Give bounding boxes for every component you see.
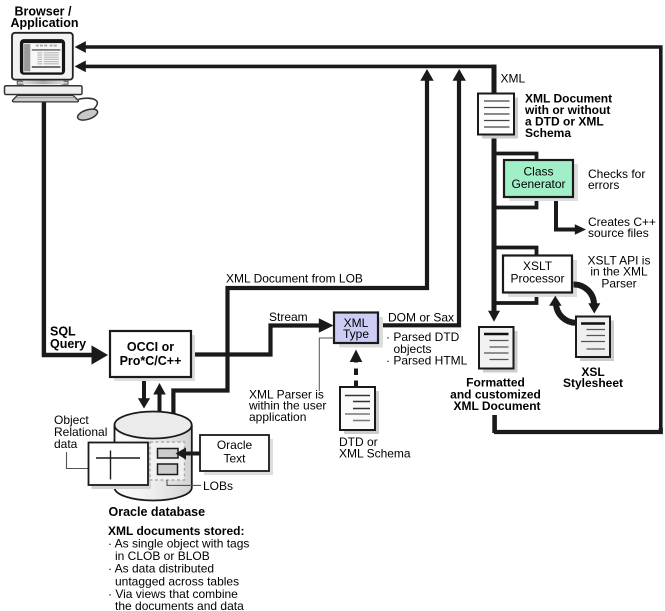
svg-text:DOM or Sax: DOM or Sax xyxy=(388,311,454,325)
svg-text:Parser: Parser xyxy=(601,276,636,290)
svg-text:Stylesheet: Stylesheet xyxy=(563,376,623,390)
svg-text:XML: XML xyxy=(501,72,526,86)
svg-text:XML Schema: XML Schema xyxy=(339,446,411,460)
svg-text:OCCI or: OCCI or xyxy=(127,340,174,354)
svg-text:Query: Query xyxy=(50,337,86,351)
svg-text:the documents and data: the documents and data xyxy=(115,599,244,611)
svg-text:data: data xyxy=(54,437,78,451)
svg-text:Type: Type xyxy=(343,327,369,341)
svg-text:source files: source files xyxy=(588,226,649,240)
svg-text:· Parsed HTML: · Parsed HTML xyxy=(386,353,468,367)
svg-text:errors: errors xyxy=(588,178,619,192)
svg-text:application: application xyxy=(249,410,306,424)
svg-text:Schema: Schema xyxy=(525,126,571,140)
svg-text:Processor: Processor xyxy=(510,271,564,285)
svg-text:Pro*C/C++: Pro*C/C++ xyxy=(120,354,182,368)
svg-text:Stream: Stream xyxy=(269,310,308,324)
svg-text:XML Document: XML Document xyxy=(453,399,540,413)
svg-text:LOBs: LOBs xyxy=(203,479,233,493)
svg-text:Application: Application xyxy=(11,16,79,30)
svg-text:XML Document from LOB: XML Document from LOB xyxy=(226,271,363,285)
svg-text:Generator: Generator xyxy=(511,177,565,191)
svg-text:Text: Text xyxy=(223,452,246,466)
svg-text:Oracle database: Oracle database xyxy=(109,505,206,519)
svg-text:Oracle: Oracle xyxy=(217,438,253,452)
